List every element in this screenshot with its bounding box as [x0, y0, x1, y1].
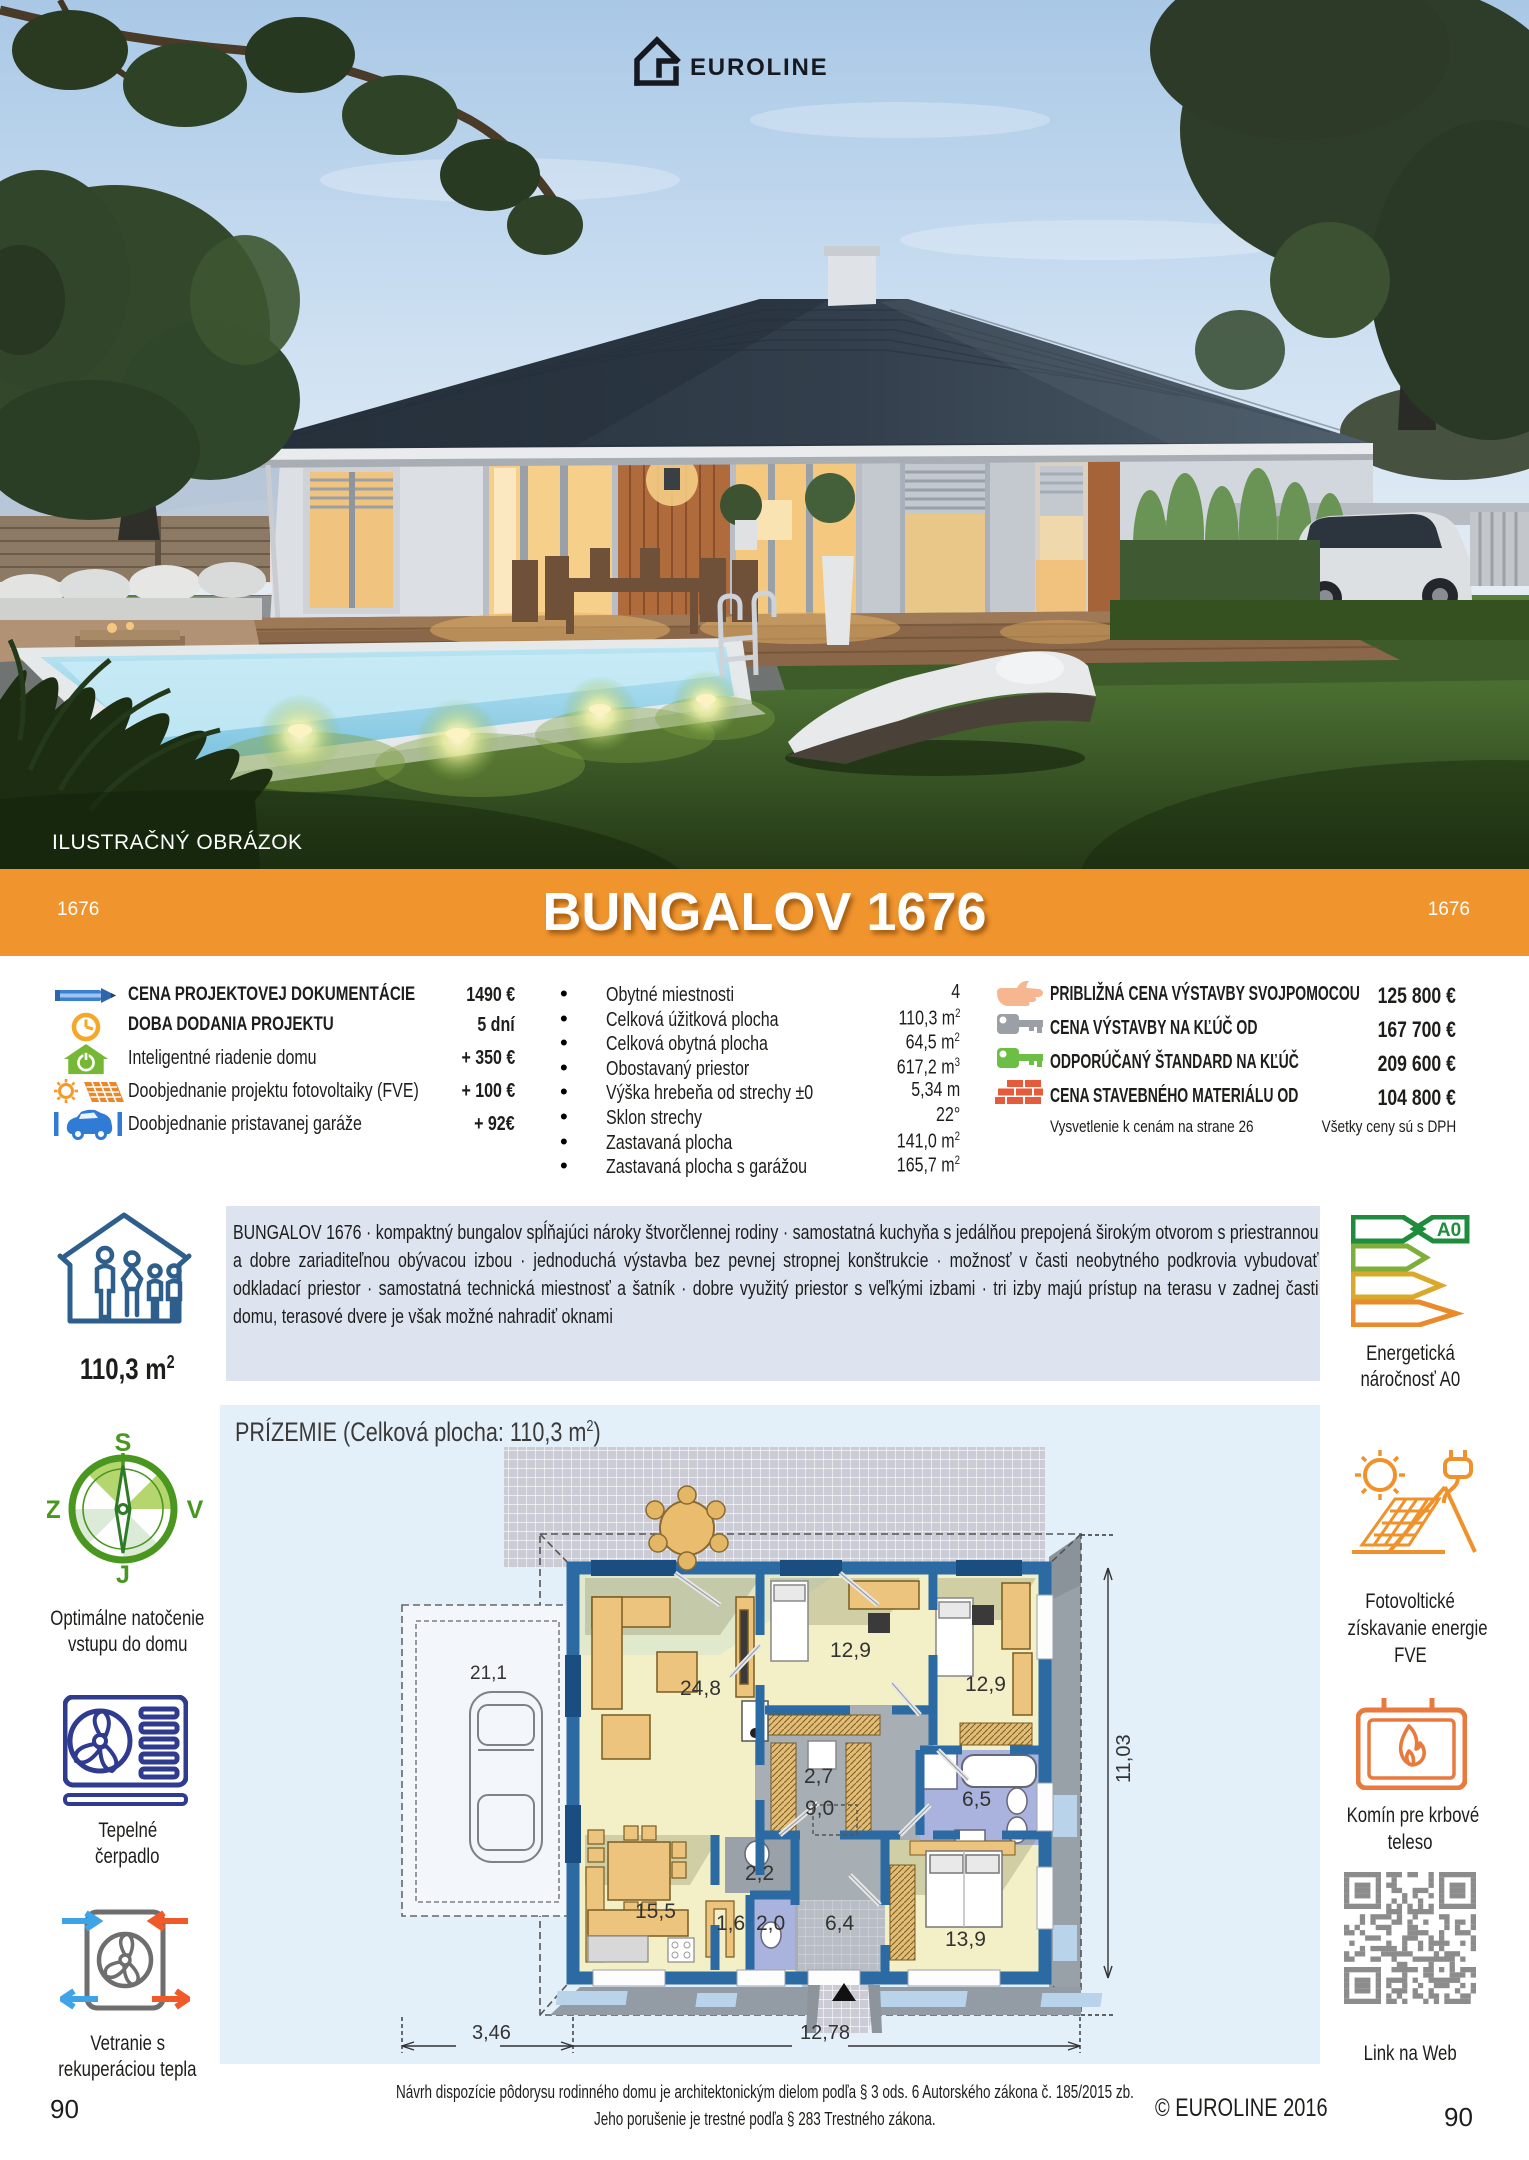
svg-text:12,9: 12,9 [965, 1673, 1006, 1696]
svg-text:11,03: 11,03 [1113, 1734, 1135, 1783]
svg-text:9,0: 9,0 [805, 1797, 834, 1820]
svg-text:V: V [187, 1496, 204, 1524]
svg-text:Z: Z [47, 1496, 61, 1524]
svg-text:ILUSTRAČNÝ OBRÁZOK: ILUSTRAČNÝ OBRÁZOK [52, 831, 303, 854]
svg-text:J: J [116, 1561, 130, 1588]
svg-text:2,2: 2,2 [745, 1862, 774, 1885]
svg-text:A0: A0 [1437, 1220, 1461, 1241]
svg-text:15,5: 15,5 [635, 1900, 676, 1923]
svg-text:3,46: 3,46 [472, 2022, 511, 2044]
svg-text:2,0: 2,0 [756, 1912, 785, 1935]
svg-text:2,7: 2,7 [804, 1765, 833, 1788]
svg-text:1,6: 1,6 [716, 1912, 745, 1935]
svg-text:6,5: 6,5 [962, 1788, 991, 1811]
svg-text:12,9: 12,9 [830, 1639, 871, 1662]
svg-text:S: S [115, 1430, 132, 1457]
svg-text:12,78: 12,78 [800, 2022, 850, 2044]
svg-text:21,1: 21,1 [470, 1663, 507, 1684]
svg-text:6,4: 6,4 [825, 1912, 855, 1935]
svg-text:24,8: 24,8 [680, 1677, 721, 1700]
svg-text:EUROLINE: EUROLINE [690, 54, 828, 81]
svg-text:13,9: 13,9 [945, 1928, 986, 1951]
